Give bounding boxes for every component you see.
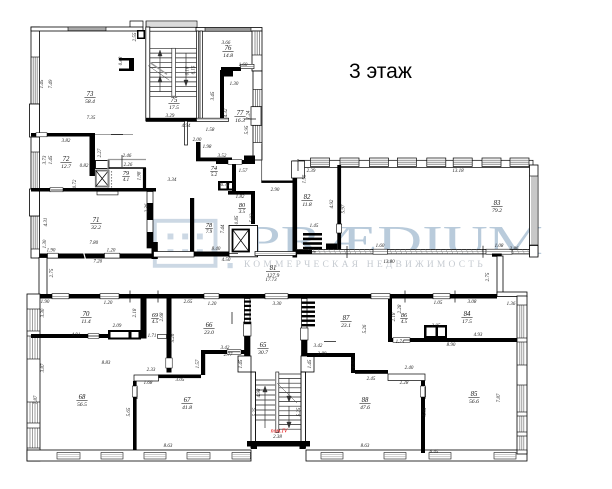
svg-text:2.18: 2.18 (392, 312, 397, 321)
svg-text:1.08: 1.08 (495, 244, 504, 249)
svg-text:4.93: 4.93 (474, 333, 483, 338)
svg-text:69: 69 (152, 312, 158, 319)
svg-text:1.30: 1.30 (230, 82, 239, 87)
svg-text:2.05: 2.05 (432, 324, 441, 329)
svg-text:1.60: 1.60 (239, 63, 248, 68)
svg-text:13.80: 13.80 (383, 260, 395, 265)
svg-text:4.94: 4.94 (182, 124, 191, 129)
svg-text:79: 79 (123, 170, 129, 177)
svg-text:85: 85 (471, 391, 478, 398)
svg-text:3.08: 3.08 (468, 300, 477, 305)
svg-text:1.45: 1.45 (308, 359, 313, 368)
svg-text:1.90: 1.90 (41, 300, 50, 305)
svg-text:76: 76 (225, 45, 232, 52)
svg-text:2.26: 2.26 (124, 163, 133, 168)
svg-text:2.27: 2.27 (98, 148, 103, 157)
svg-text:1.36: 1.36 (507, 302, 516, 307)
svg-text:5.25: 5.25 (253, 407, 258, 416)
svg-text:13.18: 13.18 (452, 169, 464, 174)
svg-text:0.70: 0.70 (221, 183, 230, 188)
svg-text:71: 71 (93, 217, 100, 224)
svg-text:1.20: 1.20 (104, 301, 113, 306)
svg-text:2.88: 2.88 (318, 352, 327, 357)
svg-text:3.45: 3.45 (211, 91, 216, 100)
svg-text:8.63: 8.63 (361, 444, 370, 449)
svg-text:74: 74 (211, 165, 217, 172)
svg-text:2.77: 2.77 (224, 353, 233, 358)
svg-text:1.45: 1.45 (310, 224, 319, 229)
svg-text:2.33: 2.33 (147, 368, 156, 373)
svg-text:3.42: 3.42 (314, 344, 323, 349)
svg-text:6.45: 6.45 (430, 450, 439, 455)
svg-text:32.2: 32.2 (90, 225, 101, 231)
svg-text:16.3: 16.3 (235, 118, 245, 124)
svg-text:56.6: 56.6 (469, 399, 479, 405)
svg-text:14.8: 14.8 (223, 53, 233, 59)
svg-text:4.5: 4.5 (401, 320, 408, 325)
svg-text:1.58: 1.58 (206, 128, 215, 133)
svg-text:2.46: 2.46 (123, 154, 132, 159)
svg-text:1.20: 1.20 (208, 302, 217, 307)
svg-text:2.75: 2.75 (50, 268, 55, 277)
svg-text:2.18: 2.18 (133, 308, 138, 317)
svg-text:1.45: 1.45 (239, 359, 244, 368)
svg-text:3.82: 3.82 (62, 139, 71, 144)
svg-text:82: 82 (304, 194, 311, 201)
svg-text:3.87: 3.87 (41, 363, 46, 372)
svg-text:1.68: 1.68 (144, 381, 153, 386)
svg-text:2.55: 2.55 (133, 32, 138, 41)
svg-text:2.36: 2.36 (145, 203, 150, 212)
svg-text:2.28: 2.28 (398, 304, 403, 313)
svg-text:8.90: 8.90 (447, 343, 456, 348)
svg-text:5.26: 5.26 (363, 324, 368, 333)
svg-text:1.24: 1.24 (247, 110, 252, 119)
svg-text:12.7: 12.7 (61, 164, 71, 170)
svg-text:66: 66 (206, 322, 213, 329)
svg-text:83: 83 (494, 200, 501, 207)
svg-text:6.15: 6.15 (192, 65, 197, 74)
svg-text:8.63: 8.63 (164, 444, 173, 449)
svg-text:7.87: 7.87 (34, 395, 39, 404)
svg-text:1.98: 1.98 (138, 171, 143, 180)
svg-text:2.68: 2.68 (160, 312, 165, 321)
svg-text:3.52: 3.52 (218, 154, 227, 159)
svg-text:2.28: 2.28 (400, 381, 409, 386)
svg-text:пом.IV: пом.IV (271, 429, 289, 435)
svg-text:7.35: 7.35 (87, 116, 96, 121)
svg-text:2.86: 2.86 (510, 247, 519, 252)
svg-text:2.00: 2.00 (193, 138, 202, 143)
svg-text:84: 84 (464, 311, 471, 318)
svg-text:КОММЕРЧЕСКАЯ НЕДВИЖИМОСТЬ: КОММЕРЧЕСКАЯ НЕДВИЖИМОСТЬ (244, 260, 486, 270)
svg-text:8.40: 8.40 (212, 247, 221, 252)
svg-text:5.02: 5.02 (250, 213, 255, 222)
svg-text:1.90: 1.90 (47, 249, 56, 254)
svg-text:7.44: 7.44 (221, 224, 226, 233)
svg-text:81: 81 (270, 265, 277, 272)
svg-text:41.8: 41.8 (182, 405, 192, 411)
svg-text:6.16: 6.16 (186, 66, 191, 75)
svg-text:4.50: 4.50 (222, 258, 231, 263)
svg-text:0.72: 0.72 (73, 179, 78, 188)
svg-text:1.71: 1.71 (148, 334, 157, 339)
svg-text:0.85: 0.85 (235, 215, 240, 224)
svg-text:3.66: 3.66 (222, 41, 231, 46)
svg-text:5.97: 5.97 (342, 204, 347, 213)
svg-text:68: 68 (79, 394, 86, 401)
svg-text:7.80: 7.80 (89, 241, 98, 246)
svg-text:1.30: 1.30 (43, 239, 48, 248)
svg-text:2.40: 2.40 (405, 366, 414, 371)
svg-text:5.2: 5.2 (211, 173, 218, 178)
svg-text:5.25: 5.25 (297, 407, 302, 416)
svg-text:3.73: 3.73 (43, 155, 48, 164)
svg-text:4.1: 4.1 (123, 178, 129, 183)
svg-text:2.39: 2.39 (307, 169, 316, 174)
svg-text:3.30: 3.30 (273, 302, 282, 307)
svg-text:2.75: 2.75 (486, 272, 491, 281)
svg-text:30.7: 30.7 (257, 350, 268, 356)
svg-text:80: 80 (239, 202, 246, 209)
svg-text:1.74: 1.74 (396, 340, 405, 345)
svg-text:3.34: 3.34 (168, 178, 177, 183)
svg-text:4.92: 4.92 (330, 199, 335, 208)
svg-text:4.98: 4.98 (257, 388, 262, 397)
svg-text:0.43: 0.43 (119, 56, 124, 65)
svg-text:11.4: 11.4 (81, 319, 91, 325)
svg-text:47.6: 47.6 (360, 405, 370, 411)
svg-text:4.91: 4.91 (72, 333, 81, 338)
svg-text:77: 77 (237, 110, 244, 117)
svg-text:5.95: 5.95 (245, 125, 250, 134)
svg-text:7.26: 7.26 (93, 260, 102, 265)
svg-text:3.42: 3.42 (221, 346, 230, 351)
svg-text:7.49: 7.49 (49, 79, 54, 88)
svg-text:1.82: 1.82 (236, 195, 245, 200)
svg-text:23.0: 23.0 (204, 330, 214, 336)
svg-text:79.2: 79.2 (492, 208, 502, 214)
svg-text:11.8: 11.8 (302, 202, 312, 208)
svg-text:4.31: 4.31 (44, 218, 49, 227)
svg-text:73: 73 (87, 91, 94, 98)
svg-text:2.38: 2.38 (273, 435, 282, 440)
svg-text:4.32: 4.32 (224, 108, 229, 117)
svg-text:5.26: 5.26 (171, 333, 176, 342)
svg-text:7.9: 7.9 (206, 230, 213, 235)
svg-text:1.57: 1.57 (352, 359, 357, 368)
svg-text:17.5: 17.5 (462, 319, 472, 325)
svg-text:1.45: 1.45 (40, 79, 45, 88)
svg-text:1.45: 1.45 (49, 155, 54, 164)
svg-text:3.05: 3.05 (176, 378, 185, 383)
svg-text:8.83: 8.83 (102, 361, 111, 366)
svg-text:2.45: 2.45 (367, 377, 376, 382)
svg-text:3.5: 3.5 (239, 210, 246, 215)
svg-text:1.60: 1.60 (376, 244, 385, 249)
svg-text:17.5: 17.5 (169, 105, 179, 111)
svg-text:88: 88 (362, 397, 369, 404)
svg-text:4.5: 4.5 (152, 320, 159, 325)
svg-text:7.87: 7.87 (497, 393, 502, 402)
svg-text:75: 75 (171, 97, 178, 104)
svg-text:1.57: 1.57 (196, 359, 201, 368)
svg-text:1.98: 1.98 (203, 145, 212, 150)
svg-text:2.65: 2.65 (184, 300, 193, 305)
svg-text:3.30: 3.30 (41, 308, 46, 317)
svg-text:0.82: 0.82 (80, 164, 89, 169)
svg-text:1.05: 1.05 (434, 301, 443, 306)
svg-text:56.5: 56.5 (77, 402, 87, 408)
svg-text:23.1: 23.1 (341, 323, 351, 329)
svg-text:2.90: 2.90 (271, 188, 280, 193)
svg-text:72: 72 (63, 156, 70, 163)
svg-text:65: 65 (260, 342, 267, 349)
svg-text:3.29: 3.29 (166, 114, 175, 119)
svg-text:1.20: 1.20 (107, 248, 116, 253)
svg-text:70: 70 (83, 311, 90, 318)
svg-text:17.73: 17.73 (265, 278, 277, 283)
svg-text:5.65: 5.65 (423, 407, 428, 416)
svg-text:1.57: 1.57 (239, 169, 248, 174)
svg-text:58.4: 58.4 (85, 99, 95, 105)
svg-text:67: 67 (184, 397, 191, 404)
svg-text:1.55: 1.55 (303, 174, 308, 183)
svg-text:2.09: 2.09 (113, 324, 122, 329)
svg-text:87: 87 (343, 315, 350, 322)
svg-text:78: 78 (206, 222, 213, 229)
svg-text:3 этаж: 3 этаж (349, 60, 412, 83)
svg-text:5.65: 5.65 (127, 407, 132, 416)
